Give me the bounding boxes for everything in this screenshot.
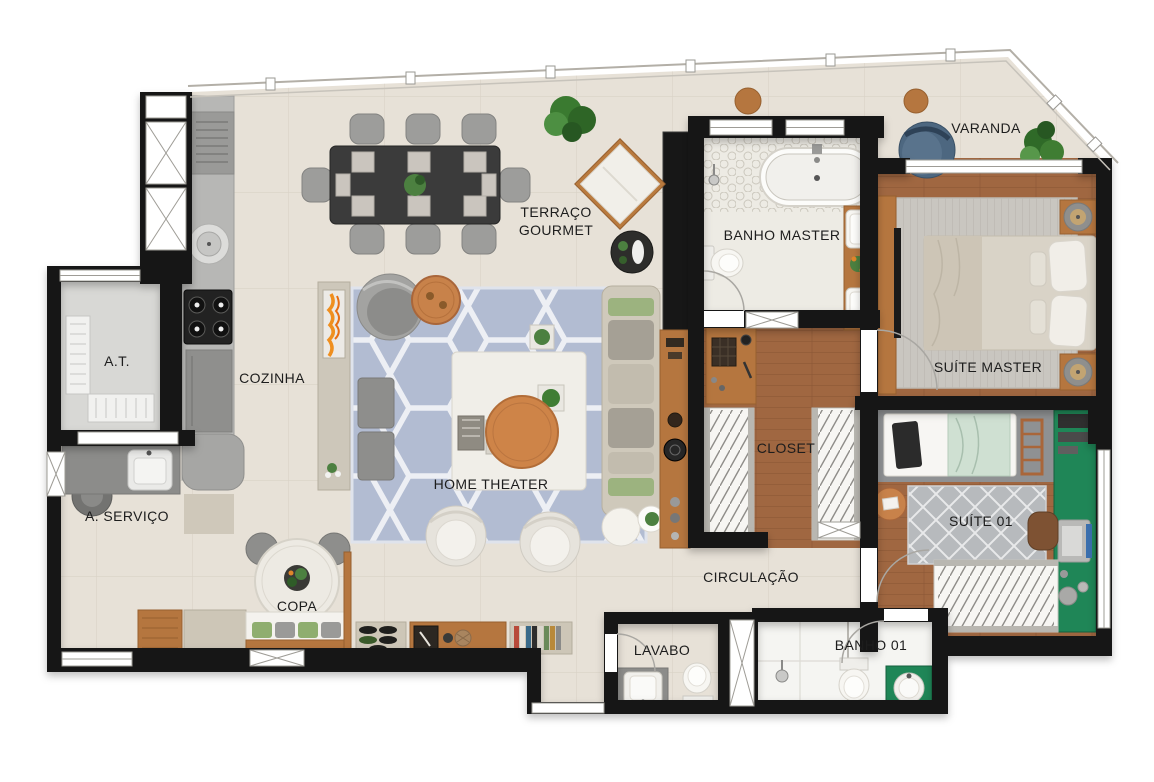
at-louver xyxy=(78,432,178,444)
fireplace-console xyxy=(318,282,350,490)
room-label-lavabo: LAVABO xyxy=(634,641,690,659)
closet-rack-left xyxy=(704,408,754,540)
lavabo-door-gap xyxy=(605,634,617,672)
room-label-suite-01: SUÍTE 01 xyxy=(949,512,1013,530)
round-wood-table xyxy=(486,396,558,468)
toilet-01 xyxy=(839,658,869,701)
core-box xyxy=(146,96,186,118)
cooktop xyxy=(184,290,232,344)
master-bed xyxy=(924,236,1096,350)
hall-window xyxy=(532,703,604,713)
room-label-cozinha: COZINHA xyxy=(239,369,305,387)
tv-panel xyxy=(663,132,689,330)
apartment-floor-plan: TERRAÇO GOURMET VARANDA BANHO MASTER SUÍ… xyxy=(0,0,1154,782)
armchair-1 xyxy=(426,506,486,566)
closet-rack-right xyxy=(812,408,860,540)
wood-divider xyxy=(344,552,351,656)
floor-plan-graphic xyxy=(0,0,1154,782)
banho-01-door-gap xyxy=(884,609,928,621)
suite-master-tv xyxy=(894,228,901,338)
bathtub xyxy=(760,144,874,206)
suite-01-wardrobe xyxy=(934,560,1058,632)
ac-unit-vertical xyxy=(66,316,90,394)
nightstand-top xyxy=(1060,200,1096,234)
nightstand-bottom xyxy=(1060,354,1096,390)
closet-dresser xyxy=(706,326,756,404)
desk-chair xyxy=(1028,512,1058,550)
room-label-circulacao: CIRCULAÇÃO xyxy=(703,568,799,586)
kitchen-sink xyxy=(189,224,229,264)
room-label-at: A.T. xyxy=(104,352,130,370)
room-label-banho-master: BANHO MASTER xyxy=(724,226,841,244)
single-bed xyxy=(884,414,1016,476)
armchair-2 xyxy=(520,512,580,572)
room-label-copa: COPA xyxy=(277,597,317,615)
dark-side-table xyxy=(611,231,653,273)
wood-tray-table xyxy=(412,276,460,324)
room-label-terraco-gourmet: TERRAÇO GOURMET xyxy=(510,203,602,239)
room-label-banho-01: BANHO 01 xyxy=(835,636,907,654)
room-label-home-theater: HOME THEATER xyxy=(434,475,549,493)
kitchen-cabinet xyxy=(186,350,232,432)
round-wood-stool xyxy=(735,88,761,114)
ac-unit-horizontal xyxy=(88,394,154,422)
round-wood-stool-2 xyxy=(904,89,928,113)
media-panel xyxy=(878,196,896,394)
bar-console xyxy=(660,330,690,548)
room-label-a-servico: A. SERVIÇO xyxy=(85,507,169,525)
suite-01-door-gap xyxy=(861,548,877,602)
suite-01-side-table xyxy=(874,488,906,520)
banho-master-door-gap xyxy=(704,311,744,327)
room-label-varanda: VARANDA xyxy=(951,119,1020,137)
room-label-closet: CLOSET xyxy=(757,439,815,457)
room-label-suite-master: SUÍTE MASTER xyxy=(934,358,1042,376)
sofa xyxy=(602,286,660,516)
copa-bench xyxy=(246,612,348,654)
suite-master-door-gap xyxy=(861,330,877,392)
kitchen-mat xyxy=(184,494,234,534)
dining-chair xyxy=(350,114,384,144)
